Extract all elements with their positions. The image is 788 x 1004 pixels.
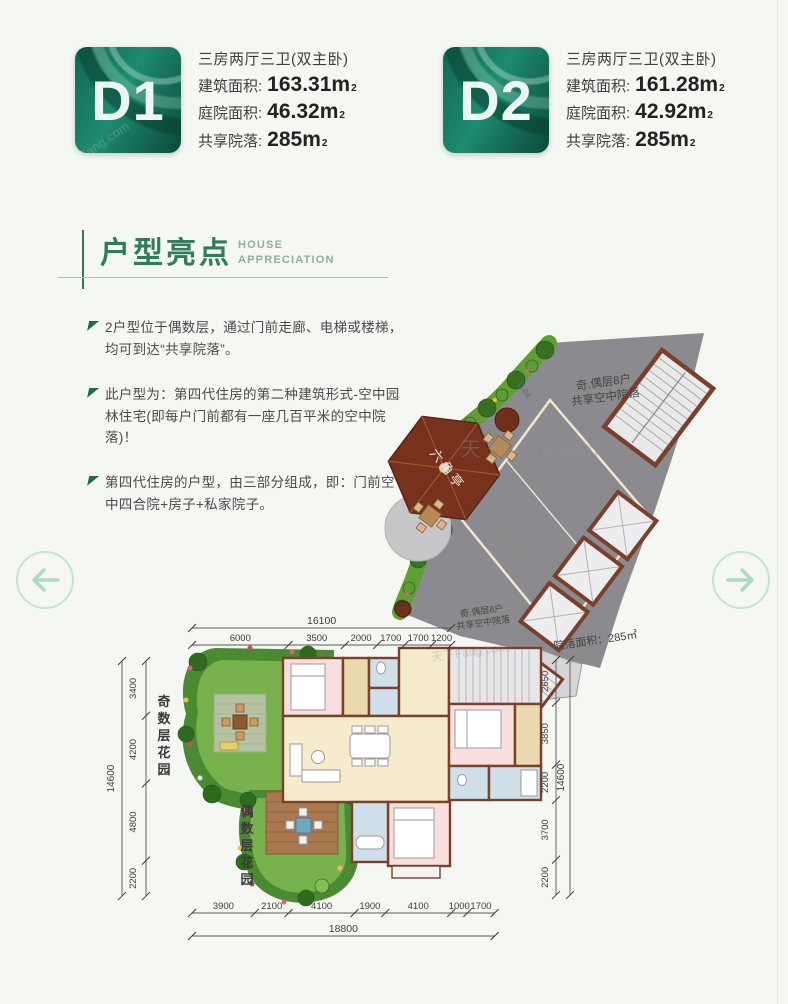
path-flowers: [405, 369, 529, 596]
field-sup: 2: [322, 138, 328, 149]
room-bath-1: [369, 658, 399, 688]
room-bedroom-3: [388, 802, 450, 866]
bathtub: [356, 836, 384, 849]
courtyard-seating: [475, 422, 525, 472]
field-value: 42.92m: [635, 100, 706, 124]
field-label: 庭院面积:: [198, 102, 262, 123]
balcony: [392, 866, 440, 878]
stairs-block: [604, 350, 713, 465]
field-sup: 2: [707, 110, 713, 121]
unit-code: D1: [91, 68, 165, 133]
tree-canopy: [495, 408, 519, 432]
unit-field: 共享院落: 285m 2: [198, 128, 357, 152]
field-value: 46.32m: [267, 100, 338, 124]
badminton-court: [462, 400, 648, 640]
svg-text:奇数层花园: 奇数层花园: [157, 694, 171, 777]
room-bath-5: [352, 802, 388, 862]
unit-code: D2: [459, 68, 533, 133]
highlight-text: 第四代住房的户型，由三部分组成，即：门前空中四合院+房子+私家院子。: [105, 475, 395, 512]
svg-text:2000: 2000: [350, 633, 371, 644]
room-stair-hall: [449, 648, 541, 704]
room-foyer: [399, 648, 449, 716]
room-bedroom-2: [449, 704, 515, 766]
garden-flowers: [238, 808, 343, 905]
svg-text:院落面积：285㎡: 院落面积：285㎡: [553, 627, 638, 653]
svg-text:六角亭: 六角亭: [427, 446, 468, 493]
unit-layout-type: 三房两厅三卫(双主卧): [198, 48, 357, 69]
highlight-list: 2户型位于偶数层，通过门前走廊、电梯或楼梯，均可到达“共享院落”。 此户型为：第…: [88, 317, 408, 539]
svg-text:3850: 3850: [540, 723, 551, 744]
room-closet: [343, 658, 369, 716]
field-label: 共享院落:: [198, 130, 262, 151]
svg-text:1700: 1700: [408, 633, 429, 644]
unit-card-d1: D1 三房两厅三卫(双主卧) 建筑面积: 163.31m 2 庭院面积: 46.…: [75, 47, 357, 153]
garden-patio: [214, 694, 266, 752]
svg-text:16100: 16100: [307, 615, 336, 627]
garden-table: [233, 715, 247, 729]
highlight-text: 2户型位于偶数层，通过门前走廊、电梯或楼梯，均可到达“共享院落”。: [105, 320, 403, 357]
garden-lounge: [220, 742, 238, 750]
apartment-furniture: [290, 650, 537, 858]
room-bath-2: [369, 688, 399, 716]
arrow-right-icon: [725, 566, 757, 594]
svg-text:2200: 2200: [540, 772, 551, 793]
lower-stair-block: [512, 660, 563, 713]
shower: [521, 770, 537, 796]
svg-text:4800: 4800: [128, 811, 139, 832]
svg-text:3700: 3700: [540, 819, 551, 840]
svg-text:18800: 18800: [329, 923, 358, 935]
unit-field: 共享院落: 285m 2: [566, 128, 725, 152]
section-divider: [58, 277, 388, 278]
field-label: 建筑面积:: [198, 75, 262, 96]
unit-field: 建筑面积: 163.31m 2: [198, 73, 357, 97]
courtyard-seating: [405, 491, 455, 541]
svg-text:天下Fang.com: 天下Fang.com: [430, 640, 509, 665]
svg-text:2200: 2200: [540, 867, 551, 888]
field-sup: 2: [351, 83, 357, 94]
field-value: 285m: [635, 128, 689, 152]
field-value: 161.28m: [635, 73, 718, 97]
svg-text:奇.偶层8户共享空中院落: 奇.偶层8户共享空中院落: [568, 370, 641, 408]
unit-badge-d1: D1: [75, 47, 181, 153]
svg-text:4100: 4100: [408, 901, 429, 912]
svg-text:1200: 1200: [431, 633, 452, 644]
toilet: [458, 775, 467, 786]
garden-even: [236, 788, 358, 906]
arrow-left-icon: [29, 566, 61, 594]
shared-courtyard: [394, 333, 704, 668]
bed: [394, 808, 434, 858]
page-edge-divider: [777, 0, 778, 1004]
garden-table: [296, 818, 311, 833]
svg-text:天下Fang.com: 天下Fang.com: [461, 439, 600, 461]
section-subtitle: HOUSE APPRECIATION: [238, 238, 335, 269]
sofa: [302, 770, 340, 782]
svg-text:3400: 3400: [128, 678, 139, 699]
section-subtitle-line: HOUSE: [238, 238, 335, 253]
garden-odd: [178, 646, 334, 812]
room-bedroom-1: [283, 658, 343, 716]
unit-field: 庭院面积: 42.92m 2: [566, 100, 725, 124]
svg-text:6000: 6000: [230, 633, 251, 644]
unit-layout-type: 三房两厅三卫(双主卧): [566, 48, 725, 69]
field-sup: 2: [690, 138, 696, 149]
unit-info-d1: 三房两厅三卫(双主卧) 建筑面积: 163.31m 2 庭院面积: 46.32m…: [198, 47, 357, 153]
unit-info-d2: 三房两厅三卫(双主卧) 建筑面积: 161.28m 2 庭院面积: 42.92m…: [566, 47, 725, 153]
section-accent-bar: [82, 230, 84, 289]
next-button[interactable]: [712, 551, 770, 609]
bed: [455, 710, 501, 748]
svg-text:2650: 2650: [540, 671, 551, 692]
highlight-text: 此户型为：第四代住房的第二种建筑形式-空中园林住宅(即每户门前都有一座几百平米的…: [105, 387, 400, 446]
unit-field: 庭院面积: 46.32m 2: [198, 100, 357, 124]
flag-icon: [87, 476, 99, 486]
svg-text:1000: 1000: [449, 901, 470, 912]
coffee-table: [312, 751, 325, 764]
courtyard-landing: [541, 650, 582, 700]
svg-text:偶数层花园: 偶数层花园: [240, 804, 254, 887]
room-living-dining: [283, 716, 449, 802]
field-sup: 2: [719, 83, 725, 94]
svg-text:E-04: E-04: [515, 381, 533, 400]
field-label: 共享院落:: [566, 130, 630, 151]
field-value: 163.31m: [267, 73, 350, 97]
prev-button[interactable]: [16, 551, 74, 609]
svg-text:1900: 1900: [359, 901, 380, 912]
svg-text:奇.偶层8户共享空中院落: 奇.偶层8户共享空中院落: [454, 601, 511, 631]
svg-text:2100: 2100: [261, 901, 282, 912]
elevators: [521, 492, 657, 650]
room-closet-2: [515, 704, 541, 766]
svg-text:1700: 1700: [380, 633, 401, 644]
garden-flowers: [184, 646, 305, 809]
highlight-item: 第四代住房的户型，由三部分组成，即：门前空中四合院+房子+私家院子。: [88, 472, 408, 516]
svg-text:4100: 4100: [311, 901, 332, 912]
field-label: 庭院面积:: [566, 102, 630, 123]
apartment-unit: [283, 648, 541, 878]
field-value: 285m: [267, 128, 321, 152]
unit-badge-d2: D2: [443, 47, 549, 153]
floorplan-page: D1 三房两厅三卫(双主卧) 建筑面积: 163.31m 2 庭院面积: 46.…: [0, 0, 788, 1004]
path-shrubs: [394, 341, 554, 616]
svg-text:3500: 3500: [306, 633, 327, 644]
room-bath-3: [449, 766, 489, 800]
highlight-item: 此户型为：第四代住房的第二种建筑形式-空中园林住宅(即每户门前都有一座几百平米的…: [88, 384, 408, 450]
svg-text:4200: 4200: [128, 739, 139, 760]
svg-text:3900: 3900: [213, 901, 234, 912]
svg-text:2200: 2200: [128, 868, 139, 889]
garden-patio: [266, 792, 338, 854]
svg-text:羽毛球场: 羽毛球场: [498, 529, 540, 578]
svg-text:1700: 1700: [470, 901, 491, 912]
tree-canopy: [395, 601, 411, 617]
bed: [291, 664, 325, 710]
svg-text:14600: 14600: [106, 764, 117, 792]
highlight-item: 2户型位于偶数层，通过门前走廊、电梯或楼梯，均可到达“共享院落”。: [88, 317, 408, 361]
tree-canopy: [430, 518, 452, 540]
room-bath-4: [489, 766, 541, 800]
sofa: [290, 744, 302, 776]
section-title: 户型亮点: [100, 228, 232, 272]
unit-card-d2: D2 三房两厅三卫(双主卧) 建筑面积: 161.28m 2 庭院面积: 42.…: [443, 47, 725, 153]
svg-text:14600: 14600: [556, 763, 567, 791]
flag-icon: [87, 321, 99, 331]
flag-icon: [87, 388, 99, 398]
field-label: 建筑面积:: [566, 75, 630, 96]
toilet: [377, 662, 386, 674]
unit-field: 建筑面积: 161.28m 2: [566, 73, 725, 97]
dimension-annotations: 6000350020001700170012001610039002100410…: [106, 615, 574, 940]
dining-table: [350, 734, 390, 758]
field-sup: 2: [339, 110, 345, 121]
section-subtitle-line: APPRECIATION: [238, 253, 335, 268]
